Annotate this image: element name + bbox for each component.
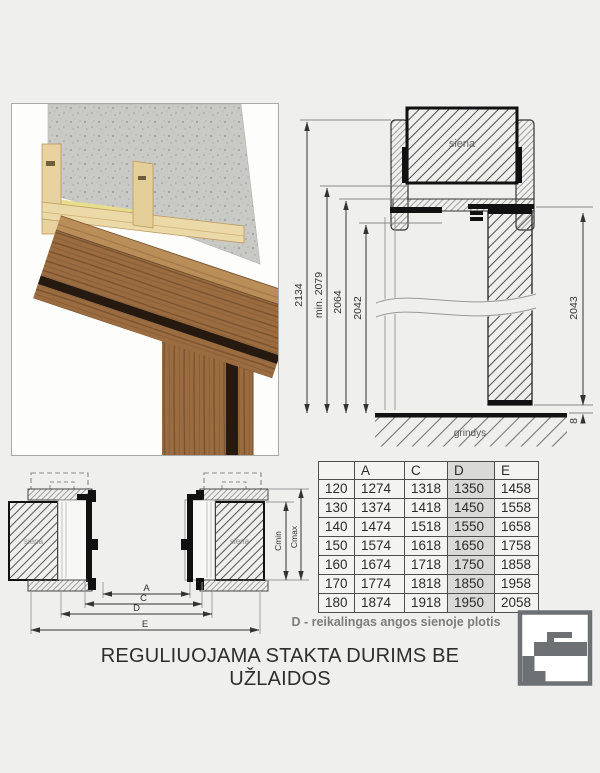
horizontal-section-drawing: siena siena	[0, 465, 315, 650]
table-cell: 1758	[495, 537, 539, 556]
table-cell: 1518	[405, 518, 448, 537]
table-cell: 130	[319, 499, 355, 518]
dimensions-table: A C D E 120 1274 1318 1350 1458 130 1374…	[318, 461, 539, 613]
dimension-note: D - reikalingas angos sienoje plotis	[276, 615, 516, 629]
fixing-plate-right	[516, 147, 522, 183]
floor-label: grindys	[454, 428, 486, 439]
table-cell: 150	[319, 537, 355, 556]
table-header-row: A C D E	[319, 462, 539, 480]
seal-nib	[92, 539, 98, 550]
table-cell: 1274	[355, 480, 405, 499]
table-cell: 1418	[405, 499, 448, 518]
table-cell: 1874	[355, 594, 405, 613]
frame-inner-edge	[187, 498, 193, 582]
floor-line	[375, 413, 567, 418]
table-cell: 1558	[495, 499, 539, 518]
dim-label-frame: 2064	[332, 290, 344, 314]
page-title: REGULIUOJAMA STAKTA DURIMS BE UŽLAIDOS	[50, 645, 510, 691]
table-cell: 1374	[355, 499, 405, 518]
frame-corner-detail	[88, 578, 96, 590]
table-cell: 1818	[405, 575, 448, 594]
table-cell: 1718	[405, 556, 448, 575]
table-cell: 140	[319, 518, 355, 537]
frame-channel	[58, 500, 88, 580]
table-cell: 1774	[355, 575, 405, 594]
dim-label-gap: 8	[568, 418, 580, 424]
table-header-e: E	[495, 462, 539, 480]
dim-label-d: D	[133, 603, 140, 614]
adjustable-extension-dashed	[204, 473, 261, 489]
seal-detail	[470, 211, 483, 215]
table-cell: 1550	[448, 518, 495, 537]
table-cell: 1750	[448, 556, 495, 575]
table-header-a: A	[355, 462, 405, 480]
dim-label-opening: 2042	[352, 296, 364, 320]
table-header-blank	[319, 462, 355, 480]
frame-hook	[77, 494, 92, 500]
architrave-bottom	[28, 580, 92, 591]
table-cell: 1658	[495, 518, 539, 537]
wall-label: siena	[230, 537, 250, 546]
dim-label-min: min. 2079	[313, 272, 325, 318]
frame-hook	[187, 494, 202, 500]
dim-label-e: E	[142, 619, 148, 630]
table-row: 170 1774 1818 1850 1958	[319, 575, 539, 594]
table-cell: 170	[319, 575, 355, 594]
door-leaf-top-edge	[488, 209, 532, 214]
seal-nib	[181, 539, 187, 550]
door-leaf-bottom-edge	[488, 400, 532, 405]
page: siena grindys	[0, 0, 600, 773]
table-header-d: D	[448, 462, 495, 480]
fixing-plate-left	[402, 147, 408, 183]
frame-inner-edge	[86, 498, 92, 582]
table-cell: 1618	[405, 537, 448, 556]
brand-logo	[517, 609, 593, 687]
vertical-section-drawing: siena grindys	[290, 95, 600, 460]
dim-label-leaf: 2043	[568, 296, 580, 320]
dim-label-cmax: Cmax	[289, 525, 299, 548]
table-cell: 1450	[448, 499, 495, 518]
table-cell: 1958	[495, 575, 539, 594]
architrave-bottom	[200, 580, 268, 591]
table-header-c: C	[405, 462, 448, 480]
frame-corner-illustration	[12, 104, 278, 455]
frame-corner-photo	[11, 103, 279, 456]
adjustable-extension-step	[222, 482, 246, 489]
table-cell: 1474	[355, 518, 405, 537]
table-row: 120 1274 1318 1350 1458	[319, 480, 539, 499]
table-cell: 1458	[495, 480, 539, 499]
left-jamb-section: siena	[9, 473, 98, 591]
right-jamb-section: siena	[181, 473, 268, 591]
wall-label: siena	[449, 138, 476, 150]
frame-head-edge-right	[468, 204, 534, 209]
frame-head-edge-left	[390, 207, 442, 213]
table-row: 160 1674 1718 1750 1858	[319, 556, 539, 575]
architrave-top	[200, 489, 268, 500]
table-row: 180 1874 1918 1950 2058	[319, 594, 539, 613]
adjustable-extension-step	[50, 482, 74, 489]
table-cell: 180	[319, 594, 355, 613]
table-row: 130 1374 1418 1450 1558	[319, 499, 539, 518]
table-cell: 1318	[405, 480, 448, 499]
break-band	[376, 301, 536, 310]
table-cell: 1950	[448, 594, 495, 613]
table-cell: 1850	[448, 575, 495, 594]
table-cell: 1858	[495, 556, 539, 575]
table-cell: 1674	[355, 556, 405, 575]
table-cell: 1574	[355, 537, 405, 556]
table-cell: 1350	[448, 480, 495, 499]
adjustable-extension-dashed	[31, 473, 88, 489]
table-row: 140 1474 1518 1550 1658	[319, 518, 539, 537]
table-cell: 1650	[448, 537, 495, 556]
dim-label-total: 2134	[293, 283, 305, 307]
table-cell: 1918	[405, 594, 448, 613]
wall-label: siena	[24, 537, 44, 546]
dim-label-cmin: Cmin	[273, 531, 283, 551]
dim-label-c: C	[140, 593, 147, 604]
table-cell: 120	[319, 480, 355, 499]
table-cell: 160	[319, 556, 355, 575]
table-row: 150 1574 1618 1650 1758	[319, 537, 539, 556]
seal-detail	[470, 217, 483, 221]
frame-corner-detail	[196, 578, 204, 590]
